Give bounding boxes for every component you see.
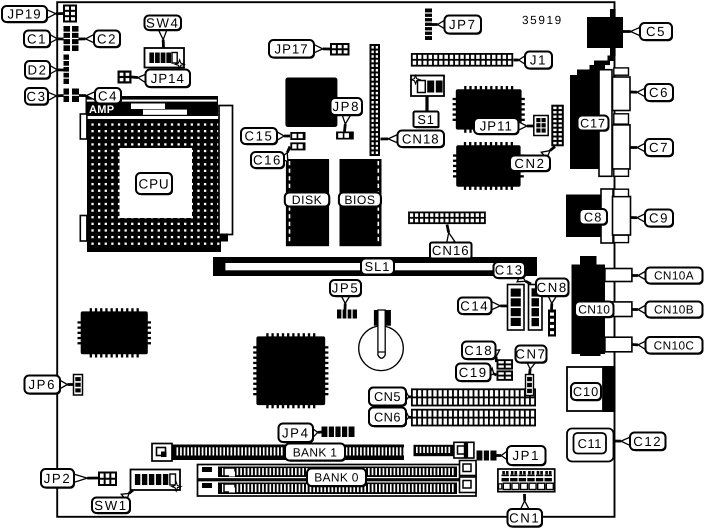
svg-text:C6: C6 bbox=[649, 85, 669, 100]
svg-text:CN10B: CN10B bbox=[654, 303, 694, 317]
svg-text:CN2: CN2 bbox=[514, 156, 545, 171]
svg-text:JP7: JP7 bbox=[449, 17, 477, 32]
svg-text:BIOS: BIOS bbox=[344, 193, 375, 207]
svg-text:C9: C9 bbox=[649, 211, 669, 226]
svg-text:JP2: JP2 bbox=[44, 471, 72, 486]
svg-text:CN6: CN6 bbox=[374, 409, 401, 424]
svg-text:C14: C14 bbox=[460, 298, 489, 313]
svg-text:SL1: SL1 bbox=[365, 259, 391, 274]
svg-text:CN10: CN10 bbox=[578, 303, 610, 317]
svg-text:C4: C4 bbox=[98, 88, 118, 103]
svg-text:JP19: JP19 bbox=[7, 7, 41, 22]
svg-text:CN18: CN18 bbox=[402, 131, 440, 146]
svg-text:JP17: JP17 bbox=[274, 41, 308, 56]
svg-text:C3: C3 bbox=[26, 89, 46, 104]
svg-text:CN10A: CN10A bbox=[654, 269, 694, 283]
svg-text:D2: D2 bbox=[27, 62, 47, 77]
svg-text:CN1: CN1 bbox=[509, 510, 540, 525]
svg-text:C18: C18 bbox=[464, 343, 493, 358]
svg-text:C2: C2 bbox=[97, 31, 117, 46]
svg-text:CN10C: CN10C bbox=[654, 338, 695, 352]
svg-text:BANK 1: BANK 1 bbox=[293, 445, 338, 459]
svg-text:C7: C7 bbox=[649, 140, 669, 155]
svg-text:C12: C12 bbox=[633, 434, 662, 449]
svg-text:35919: 35919 bbox=[522, 13, 563, 27]
svg-text:CN5: CN5 bbox=[374, 389, 401, 404]
svg-text:JP11: JP11 bbox=[480, 119, 513, 134]
svg-text:C1: C1 bbox=[27, 31, 47, 46]
svg-text:AMP: AMP bbox=[89, 104, 114, 116]
svg-text:C15: C15 bbox=[245, 129, 274, 144]
svg-text:JP8: JP8 bbox=[332, 99, 360, 114]
svg-text:SW4: SW4 bbox=[146, 15, 179, 30]
svg-text:C17: C17 bbox=[580, 116, 606, 130]
svg-text:C13: C13 bbox=[495, 263, 524, 278]
svg-text:CPU: CPU bbox=[139, 176, 170, 191]
svg-text:C5: C5 bbox=[646, 24, 666, 39]
svg-text:JP14: JP14 bbox=[151, 71, 185, 86]
svg-text:JP4: JP4 bbox=[282, 425, 310, 440]
svg-text:CN16: CN16 bbox=[432, 243, 470, 258]
svg-text:SW1: SW1 bbox=[94, 498, 127, 513]
svg-text:DISK: DISK bbox=[292, 193, 322, 207]
svg-text:S1: S1 bbox=[417, 112, 434, 127]
svg-text:CN7: CN7 bbox=[515, 347, 546, 362]
svg-text:CN8: CN8 bbox=[537, 280, 568, 295]
svg-text:JP6: JP6 bbox=[28, 377, 56, 392]
svg-text:C10: C10 bbox=[573, 384, 599, 399]
svg-text:J1: J1 bbox=[530, 53, 547, 68]
svg-text:C8: C8 bbox=[584, 209, 603, 224]
svg-text:JP5: JP5 bbox=[332, 281, 360, 296]
svg-text:C16: C16 bbox=[253, 153, 282, 168]
svg-text:BANK 0: BANK 0 bbox=[314, 471, 359, 485]
svg-text:C19: C19 bbox=[459, 365, 488, 380]
svg-text:JP1: JP1 bbox=[512, 448, 540, 463]
svg-text:C11: C11 bbox=[578, 436, 602, 451]
